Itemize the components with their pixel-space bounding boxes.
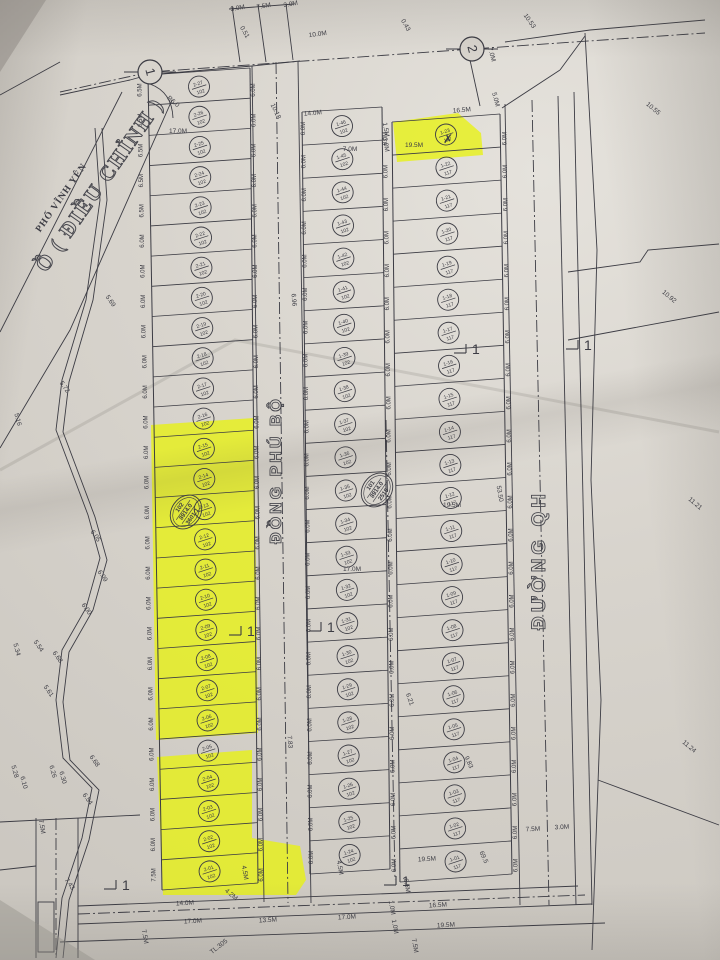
plot-row-line [152,309,252,316]
plot-circle-group: 2-27102 [186,73,212,99]
dim-label: 6.0M [386,363,392,376]
dim-label: 6.0M [144,446,150,459]
dim-label: 7.5M [410,938,419,953]
plot-number: 1-02 [449,822,461,831]
dim-label: 6.0M [507,429,513,442]
dim-label: 6.0M [306,553,312,566]
spot-elevation: 6.30 [57,771,67,785]
boundary-line [558,96,576,905]
dim-label: 6.0M [151,838,157,851]
dim-label: 6.0M [513,826,519,839]
dim-label: 6.0M [301,122,307,135]
plot-row-line [399,775,510,783]
plot-circle-group: 1-28102 [335,709,361,735]
dim-label: 6.5M [139,174,145,187]
dim-label: 6.0M [309,851,315,864]
section-mark: 1 [384,873,410,889]
dim-label: 6.0M [148,687,154,700]
spot-elevation: 6.21 [404,692,415,707]
plot-circle-group: 1-11117 [438,518,464,544]
dim-label: 6.0M [504,231,510,244]
section-mark: 1 [309,619,335,635]
spot-elevation: 5.54 [32,639,45,654]
plot-number: 1-06 [447,689,459,698]
dim-label: 17.0M [184,918,202,926]
plot-row-line [393,213,502,221]
dim-label: 6.0M [390,727,396,740]
spot-elevation: 10.55 [644,101,661,117]
boundary-line [286,4,293,60]
spot-elevation: 6.96 [289,293,297,307]
plot-number: 1-31 [341,616,353,625]
dim-label: 5.0M [490,92,501,108]
section-number: 1 [122,877,130,893]
dim-label: 6.0M [387,462,393,475]
dim-label: 6.0M [258,808,264,821]
plot-circle-group: 1-14117 [437,419,463,445]
plot-number: 1-16 [443,359,455,368]
dim-label: 7.5M [526,826,541,834]
boundary-line [585,33,601,950]
section-number: 1 [584,337,592,353]
plot-number: 2-26 [193,110,205,119]
plot-circle-group: 1-35102 [333,477,359,503]
plot-number: 1-38 [338,384,350,393]
dim-label: 6.0M [308,818,314,831]
spot-elevation: 6.10 [18,776,28,790]
dim-label: 6.0M [259,838,265,851]
plot-number: 1-34 [340,517,352,526]
dim-label: 6.0M [508,495,514,508]
dim-label: 6.0M [256,597,262,610]
plot-row-line [394,312,503,320]
dim-label: 6.0M [258,747,264,760]
plot-number: 1-09 [446,590,458,599]
plot-row-line [400,841,512,849]
plot-circle-group: 1-44102 [329,179,355,205]
plot-number: 1-26 [342,782,354,791]
plot-circle-group: 1-36102 [332,444,358,470]
map-canvas: 2-271022-261022-251022-241022-231022-221… [0,0,720,960]
plot-circle-group: 1-41102 [331,278,357,304]
dim-label: 6.0M [304,420,310,433]
plot-row-line [305,438,385,443]
dim-label: 6.0M [304,387,310,400]
dim-label: 6.0M [253,295,259,308]
plot-circle-group: 1-18117 [435,287,461,313]
dim-label: 6.0M [385,297,391,310]
plot-row-line [151,219,252,226]
spot-elevation: 5.28 [9,765,19,779]
dim-label: 6.0M [305,519,311,532]
dim-label: 6.0M [254,385,260,398]
spot-elevation: 9.83 [463,755,475,770]
plot-circle-group: 1-19117 [435,253,461,279]
dim-label: 6.0M [509,561,515,574]
plot-circle-group: 1-29102 [335,676,361,702]
dim-label: 6.0M [511,694,517,707]
plot-circle-group: 2-22102 [188,224,214,250]
plot-row-line [308,703,388,708]
dim-label: 6.5M [140,204,146,217]
plot-number: 1-33 [340,550,352,559]
dim-label: 6.0M [514,859,520,872]
plot-circle-group: 1-06117 [440,683,466,709]
dim-label: 6.0M [254,355,260,368]
dim-label: 6.0M [304,354,310,367]
dim-label: 6.0M [388,528,394,541]
plot-row-line [304,339,384,344]
dim-label: 6.0M [306,619,312,632]
plot-row-line [304,306,384,311]
spot-elevation: 5.61 [42,684,55,699]
plot-circle-group: 2-26102 [186,104,212,130]
dim-label: 6.0M [257,687,263,700]
plot-circle-group: 2-24102 [187,164,213,190]
plot-circle-group: 1-02117 [442,815,468,841]
plot-row-line [394,279,503,287]
plot-number: 1-11 [445,524,456,533]
dim-label: 6.0M [307,685,313,698]
plot-row-line [303,173,383,178]
plot-circle-group: 2-20102 [189,285,215,311]
dim-label: 3.0M [230,4,245,13]
plot-row-line [150,189,251,196]
dim-label: 6.0M [504,264,510,277]
dim-label: 19.5M [437,922,455,930]
boundary-line [0,815,140,822]
dim-label: 6.0M [256,566,262,579]
plot-number: 1-28 [342,716,354,725]
map-photo: 2-271022-261022-251022-241022-231022-221… [0,0,720,960]
dim-label: 6.0M [302,188,308,201]
dim-label: 6.0M [388,561,394,574]
dim-label: 6.0M [254,415,260,428]
dim-label: 6.0M [506,396,512,409]
dim-label: 6.0M [148,657,154,670]
plot-circle-group: 2-25102 [187,134,213,160]
plot-row-line [399,742,510,750]
dim-label: 6.0M [151,808,157,821]
boundary-line [78,904,592,924]
plot-circle-group: 1-03117 [441,782,467,808]
plot-circle-group: 1-27102 [335,742,361,768]
plot-row-line [396,477,506,485]
spot-elevation: 6.09 [96,569,109,584]
dim-label: 6.0M [140,234,146,247]
dim-label: 6.0M [256,627,262,640]
dim-label: 7.5M [37,819,46,834]
plot-number: 1-19 [441,260,453,269]
plot-row-line [398,643,509,651]
plot-circle-group: 1-05117 [441,716,467,742]
section-number: 1 [247,623,255,639]
plot-circle-group: 1-01117 [442,848,468,874]
dim-label: 19.5M [443,502,461,509]
plot-circle-group: 1-08117 [439,617,465,643]
spot-elevation: 10.92 [660,289,677,305]
dim-label: 19.5M [418,856,436,864]
plot-number: 1-36 [339,451,351,460]
plot-row-line [393,180,501,188]
plot-row-line [398,709,509,717]
dim-label: 6.0M [303,288,309,301]
plot-number: 1-29 [341,682,353,691]
dim-label: 6.0M [308,785,314,798]
plot-circle-group: 2-21102 [188,254,214,280]
plot-number: 1-24 [343,848,355,857]
dim-label: 6.0M [259,868,265,881]
spot-elevation: 10.53 [522,12,537,30]
plot-number: 1-40 [338,318,350,327]
plot-row-line [395,444,505,452]
plot-row-line [303,206,383,211]
dim-label: 6.0M [145,506,151,519]
plot-number: 2-25 [193,140,205,149]
road-label-duong-qh: ĐƯỜNG QH [528,490,550,630]
plot-number: 2-05 [202,744,214,753]
plot-row-line [153,340,253,347]
dim-label: 6.0M [386,330,392,343]
plot-row-line [309,770,389,775]
plot-number: 2-17 [197,382,209,391]
plot-circle-group: 1-10117 [438,551,464,577]
dim-label: 19.5M [405,142,423,149]
dim-label: 6.0M [302,155,308,168]
plot-row-line [305,372,385,377]
plot-circle-group: 1-46102 [329,113,355,139]
dim-label: 6.0M [392,859,398,872]
boundary-line [60,80,130,95]
dim-label: 6.0M [254,325,260,338]
dim-label: 6.0M [142,325,148,338]
paper-crease [0,340,719,470]
dim-label: 1.0M [387,900,396,915]
plot-circle-group: 1-04117 [441,749,467,775]
dim-label: 6.0M [146,566,152,579]
dim-label: 6.0M [385,264,391,277]
plot-number: 1-37 [339,417,351,426]
spot-elevation: 11.21 [687,496,704,512]
plot-row-line [150,159,251,166]
highlight-left-bottom [157,750,306,895]
dim-label: 6.0M [145,476,151,489]
plot-row-line [310,836,390,841]
dim-label: 6.0M [142,355,148,368]
dim-label: 6.0M [252,204,258,217]
plot-row-line [400,874,512,882]
dim-label: 6.0M [512,727,518,740]
plot-circle-group: 1-32102 [334,577,360,603]
plot-number: 1-08 [446,623,458,632]
dim-label: 16.5M [429,902,447,910]
dim-label: 6.5M [137,83,143,96]
plot-circle-group: 1-15117 [436,386,462,412]
plot-row-line [393,246,502,254]
plot-circle-group: 2-17102 [190,375,216,401]
dim-label: 6.0M [303,321,309,334]
dim-label: 7.0M [343,146,357,153]
plot-number: 2-24 [194,170,206,179]
dim-label: 6.0M [141,265,147,278]
dim-label: 17.0M [343,566,361,573]
plot-row-line [307,538,387,543]
plot-number: 2-27 [193,80,205,89]
dim-label: 6.0M [253,265,259,278]
section-mark: 1 [104,877,130,893]
dim-label: 6.0M [305,486,311,499]
plot-row-line [151,249,252,256]
spot-elevation: 7.83 [285,735,293,749]
plot-number: 1-13 [444,458,456,467]
plot-number: 1-12 [444,491,456,500]
dim-label: 6.0M [386,396,392,409]
plot-number: 2-23 [194,200,206,209]
boundary-line [574,92,592,905]
plot-number: 1-44 [336,185,348,194]
plot-number: 1-41 [337,285,349,294]
spot-elevation: 6.05 [89,529,102,544]
plot-number: 1-07 [446,656,458,665]
plot-number: 1-17 [442,326,454,335]
spot-elevation: 11.24 [681,739,698,755]
x-mark: ✗ [443,132,453,146]
dim-label: 6.0M [502,132,508,145]
dim-label: 6.0M [255,506,261,519]
dim-label: 6.0M [255,446,261,459]
plot-number: 1-01 [449,855,461,864]
plot-row-line [304,273,384,278]
dim-label: 1.0M [390,919,399,934]
plot-number: 2-19 [196,321,208,330]
dim-label: 6.0M [307,652,313,665]
plot-circle-group: 1-42102 [330,245,356,271]
plot-number: 1-15 [443,392,455,401]
plot-circle-group: 1-30102 [334,643,360,669]
boundary-line [568,312,719,340]
dim-label: 6.0M [305,453,311,466]
plot-circle-group: 1-26102 [336,775,362,801]
dim-label: 6.0M [384,231,390,244]
plot-row-line [302,140,382,145]
plot-circle-group: 1-37102 [332,411,358,437]
dim-label: 6.0M [389,594,395,607]
plot-number: 1-39 [338,351,350,360]
plot-row-line [310,869,390,874]
plot-row-line [306,471,386,476]
plot-row-line [396,511,506,519]
dim-label: 7.5M [152,868,158,881]
spot-elevation: 10.18 [269,103,282,121]
plot-row-line [153,370,253,377]
spot-elevation: 0.51 [238,25,251,40]
plot-number: 1-21 [440,194,452,203]
plot-row-line [154,400,254,407]
plot-number: 1-05 [447,722,459,731]
dim-label: 6.0M [503,198,509,211]
plot-circle-group: 1-13117 [437,452,463,478]
plot-number: 1-04 [448,756,460,765]
boundary-line [568,244,719,272]
plot-number: 1-43 [337,219,349,228]
boundary-line [502,70,560,108]
dim-label: 6.0M [390,694,396,707]
block-edge [382,107,390,869]
boundary-line [232,6,240,62]
plot-circle-group: 1-17117 [435,320,461,346]
station-marker: 1 [124,60,176,84]
dim-label: 6.0M [308,751,314,764]
dim-label: 6.0M [146,536,152,549]
plot-circle-group: 1-20117 [434,220,460,246]
plot-number: 1-27 [342,749,354,758]
dim-label: 6.0M [149,717,155,730]
dim-label: 3.0M [555,824,570,832]
dim-label: 10.0M [308,30,327,39]
section-number: 1 [327,619,335,635]
dim-label: 6.0M [391,760,397,773]
plot-row-line [394,345,503,353]
dim-label: 6.0M [506,363,512,376]
plot-number: 1-20 [441,227,453,236]
plot-circle-group: 2-18102 [189,345,215,371]
spot-elevation: 0.43 [399,18,412,33]
dim-label: 4.5M [335,860,344,875]
plot-number: 1-30 [341,649,353,658]
plot-row-line [397,577,507,585]
dim-label: 17.0M [338,914,356,922]
dim-label: 6.0M [391,793,397,806]
plot-number: 1-03 [448,789,460,798]
plot-row-line [397,610,508,618]
dim-label: 6.0M [303,254,309,267]
spot-elevation: 6.54 [81,792,94,807]
dim-label: 6.0M [141,295,147,308]
plot-number: 2-21 [195,261,207,270]
spot-elevation: 5.34 [11,643,21,657]
plot-row-line [398,676,509,684]
spot-elevation: 69.5 [478,850,490,865]
boundary-line [0,62,60,95]
dim-label: 6.0M [510,628,516,641]
highlight-right-top [393,113,483,162]
plot-row-line [308,637,388,642]
spot-elevation: 53.50 [495,485,505,503]
dim-label: 6.0M [143,415,149,428]
dim-label: 6.0M [143,385,149,398]
map-title-big: Ồ ( ĐIỀU CHỈNH ) [30,93,168,276]
plot-circle-group: 1-09117 [439,584,465,610]
plot-row-line [307,604,387,609]
plot-number: 1-25 [343,815,355,824]
spot-elevation: 5.69 [104,294,117,309]
dim-label: 6.0M [258,778,264,791]
plot-row-line [152,279,252,286]
plot-circle-group: 1-31102 [334,610,360,636]
dim-label: 6.0M [384,165,390,178]
plot-number: 1-35 [339,484,351,493]
plot-row-line [399,808,511,816]
road-centerline [78,895,585,914]
dim-label: 6.0M [511,661,517,674]
dim-label: 6.0M [147,597,153,610]
plot-row-line [395,411,505,419]
plot-circle-group: 2-23102 [187,194,213,220]
dim-label: 6.0M [512,760,518,773]
spot-elevation: 6.68 [88,754,101,769]
plot-row-line [309,736,389,741]
dim-label: 6.0M [505,297,511,310]
